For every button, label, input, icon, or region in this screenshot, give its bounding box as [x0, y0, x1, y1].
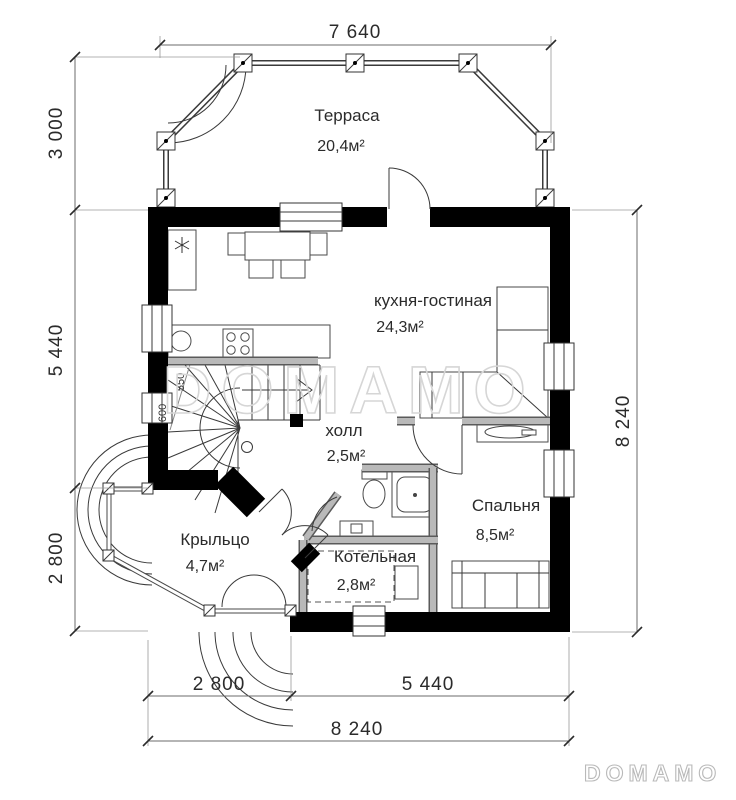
- dining-table: [245, 232, 310, 260]
- porch-entry-door: [222, 575, 286, 607]
- room-hall-name: холл: [325, 421, 362, 440]
- window-right-2: [544, 450, 574, 497]
- floor-plan-page: 7 640 3 000 5 440 2 800 8 240 2 800 5 44…: [0, 0, 736, 800]
- fridge: [168, 230, 196, 290]
- dim-top-label: 7 640: [329, 22, 382, 43]
- dim-bottom-main-label: 5 440: [402, 674, 455, 695]
- room-boiler-name: Котельная: [334, 547, 416, 566]
- floor-plan-drawing: 7 640 3 000 5 440 2 800 8 240 2 800 5 44…: [0, 0, 736, 800]
- stove: [223, 329, 253, 358]
- kitchen-counter: [168, 325, 330, 358]
- stair-tread-550: 550: [175, 373, 187, 391]
- dim-bottom-porch-label: 2 800: [193, 674, 246, 695]
- room-hall-area: 2,5м²: [327, 448, 366, 465]
- room-kitchen-area: 24,3м²: [376, 319, 424, 336]
- dim-left-terrace-label: 3 000: [46, 107, 67, 160]
- room-porch-area: 4,7м²: [186, 558, 225, 575]
- window-kitchen-top: [280, 203, 342, 231]
- washing-machine: [340, 521, 373, 537]
- room-porch-name: Крыльцо: [180, 530, 249, 549]
- dim-bottom-total-label: 8 240: [331, 719, 384, 740]
- dim-right-total-label: 8 240: [613, 395, 634, 448]
- room-bedroom-area: 8,5м²: [476, 527, 515, 544]
- toilet: [362, 470, 387, 508]
- porch-steps-west: [77, 435, 152, 585]
- kitchen-sink: [171, 331, 191, 351]
- window-left-1: [142, 305, 172, 352]
- porch-junction-posts: [103, 483, 296, 616]
- room-terrace-area: 20,4м²: [317, 138, 365, 155]
- window-boiler-bottom: [353, 606, 385, 636]
- dim-left-main-label: 5 440: [46, 324, 67, 377]
- stair-tread-600: 600: [157, 404, 169, 422]
- terrace-posts: [157, 54, 554, 207]
- terrace-door: [389, 168, 430, 209]
- room-terrace-name: Терраса: [314, 106, 380, 125]
- room-kitchen-name: кухня-гостиная: [374, 291, 492, 310]
- bedroom-dresser: [477, 425, 548, 442]
- window-right-1: [544, 343, 574, 390]
- room-boiler-area: 2,8м²: [337, 577, 376, 594]
- dim-left-porch-label: 2 800: [46, 532, 67, 585]
- dining-set: [228, 232, 327, 278]
- bedroom-sofa: [452, 561, 549, 608]
- room-bedroom-name: Спальня: [472, 496, 540, 515]
